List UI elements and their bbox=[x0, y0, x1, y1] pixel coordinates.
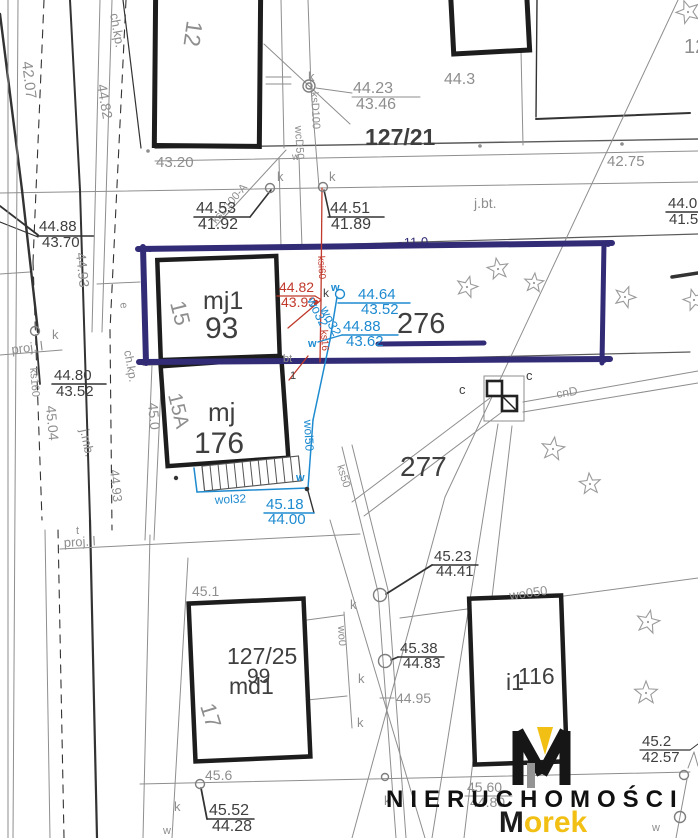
map-label: j.bt. bbox=[473, 195, 497, 211]
map-label: k bbox=[277, 169, 284, 184]
map-label: proj. l bbox=[63, 533, 96, 550]
map-label: e bbox=[117, 301, 130, 309]
map-label: w bbox=[291, 152, 300, 163]
map-label: ksi60 bbox=[315, 256, 327, 280]
map-label: 45.1 bbox=[192, 583, 219, 599]
map-label: k bbox=[329, 169, 336, 184]
map-label: 42.57 bbox=[642, 749, 680, 766]
conifer-icon bbox=[635, 681, 658, 703]
plot-highlight-line bbox=[602, 243, 604, 363]
manhole-icon bbox=[196, 780, 205, 789]
conifer-center bbox=[693, 299, 695, 301]
map-label: ks16 bbox=[318, 330, 330, 352]
map-label: k bbox=[323, 286, 330, 300]
parcel-line bbox=[316, 88, 352, 93]
map-label: 44.88 bbox=[39, 218, 77, 235]
parcel-line bbox=[0, 272, 30, 274]
map-label: 44.53 bbox=[196, 200, 236, 217]
map-label: 44.93 bbox=[73, 252, 93, 289]
map-label: c bbox=[459, 382, 466, 397]
map-label: 43.70 bbox=[42, 234, 80, 251]
parcel-line bbox=[172, 558, 188, 838]
map-label: 176 bbox=[194, 427, 244, 460]
map-label: 127/21 bbox=[365, 124, 436, 150]
map-label: k bbox=[350, 597, 357, 612]
map-label: wo0 bbox=[335, 625, 348, 647]
map-label: 44.41 bbox=[436, 563, 474, 580]
map-label: mj bbox=[208, 397, 235, 427]
map-label: md1 bbox=[229, 673, 274, 699]
parcel-line bbox=[201, 788, 207, 819]
parcel-line bbox=[60, 534, 360, 549]
map-label: 44.95 bbox=[396, 690, 431, 706]
parcel-line bbox=[388, 590, 406, 838]
parcel-line bbox=[281, 0, 284, 148]
map-label: 44.51 bbox=[330, 200, 370, 217]
survey-point bbox=[305, 487, 310, 492]
map-label: w bbox=[162, 825, 171, 837]
map-label: k bbox=[52, 327, 59, 342]
map-label: 12 bbox=[178, 19, 207, 48]
map-label: w bbox=[330, 282, 340, 294]
parcel-line bbox=[70, 0, 80, 190]
map-label: 44.23 bbox=[353, 80, 393, 97]
map-label: 44.82 bbox=[279, 279, 314, 295]
plot-highlight-line bbox=[138, 243, 612, 249]
parcel-line bbox=[307, 696, 347, 700]
conifer-center bbox=[647, 621, 649, 623]
map-label: ksD100 bbox=[308, 92, 322, 130]
map-label: 45.52 bbox=[209, 802, 249, 819]
map-label: 41.92 bbox=[198, 216, 238, 233]
map-label: 41.89 bbox=[331, 216, 371, 233]
map-label: k bbox=[308, 69, 315, 84]
map-label: k bbox=[357, 715, 364, 730]
parcel-line bbox=[45, 530, 50, 838]
parcel-line bbox=[250, 190, 271, 217]
survey-point bbox=[398, 242, 402, 246]
map-label: 42.75 bbox=[607, 153, 645, 170]
map-label: ks50 bbox=[334, 463, 352, 489]
survey-map: 1242.0744.82ch.kp.43.2042.75k44.2343.464… bbox=[0, 0, 698, 838]
parcel-line bbox=[145, 365, 152, 540]
map-label: mj1 bbox=[203, 287, 243, 315]
map-label: 44.0 bbox=[668, 195, 697, 212]
sewer-red-line bbox=[321, 188, 322, 300]
parcel-line bbox=[536, 0, 537, 117]
survey-point bbox=[174, 476, 178, 480]
conifer-center bbox=[497, 268, 499, 270]
parcel-line bbox=[688, 752, 694, 768]
map-label: k bbox=[358, 671, 365, 686]
map-label: 44.28 bbox=[212, 818, 252, 835]
map-label: wol32 bbox=[213, 491, 246, 507]
map-label: w bbox=[307, 338, 317, 350]
map-label: 45.04 bbox=[43, 405, 62, 442]
map-label: 44.80 bbox=[54, 367, 92, 384]
manhole-icon bbox=[319, 183, 328, 192]
parcel-line bbox=[352, 445, 388, 590]
map-label: 11.0 bbox=[404, 234, 429, 250]
parcel-line bbox=[0, 14, 22, 190]
conifer-icon bbox=[683, 289, 698, 310]
map-label: cnD bbox=[555, 384, 579, 401]
parcel-line bbox=[0, 182, 698, 193]
map-label: 43.52 bbox=[56, 383, 94, 400]
parcel-line bbox=[676, 779, 687, 838]
survey-point bbox=[605, 241, 611, 247]
plot-highlight-line bbox=[139, 359, 610, 362]
map-label: proj. l bbox=[11, 338, 44, 357]
survey-point bbox=[147, 246, 153, 252]
water-blue-line bbox=[194, 468, 197, 492]
map-label: w bbox=[651, 822, 660, 834]
map-canvas: 1242.0744.82ch.kp.43.2042.75k44.2343.464… bbox=[0, 0, 698, 838]
manhole-icon bbox=[374, 589, 387, 602]
parcel-line bbox=[445, 0, 678, 497]
parcel-line bbox=[536, 113, 690, 119]
map-label: c bbox=[526, 368, 533, 383]
map-label: 44.00 bbox=[268, 511, 306, 528]
map-label: 276 bbox=[397, 308, 445, 340]
c-symbol-square bbox=[487, 381, 502, 396]
map-label: bt bbox=[283, 353, 292, 365]
parcel-line bbox=[90, 520, 97, 838]
map-label: j.mb. bbox=[77, 427, 98, 459]
parcel-line bbox=[330, 520, 425, 838]
map-label: 43.62 bbox=[346, 333, 384, 350]
parcel-line bbox=[352, 398, 490, 502]
manhole-icon bbox=[379, 655, 392, 668]
conifer-center bbox=[552, 448, 554, 450]
parcel-line bbox=[143, 535, 150, 838]
parcel-line bbox=[672, 273, 698, 277]
map-label: 44.3 bbox=[444, 71, 475, 88]
plot-highlight-line bbox=[378, 343, 484, 344]
parcel-line bbox=[102, 0, 112, 332]
parcel-line bbox=[521, 50, 523, 145]
building-top-right bbox=[450, 0, 529, 54]
map-label: 45.0 bbox=[145, 402, 163, 431]
map-label: wol50 bbox=[301, 418, 317, 451]
map-label: 45.60 bbox=[467, 779, 502, 795]
survey-point bbox=[146, 149, 150, 153]
parcel-line bbox=[110, 0, 126, 330]
map-label: 43.46 bbox=[356, 96, 396, 113]
map-label: 44.80 bbox=[470, 794, 505, 810]
parcel-line bbox=[307, 615, 344, 620]
conifer-center bbox=[624, 296, 626, 298]
parcel-line bbox=[92, 0, 100, 332]
map-label: 44.83 bbox=[403, 655, 441, 672]
map-label: 44.93 bbox=[107, 469, 125, 503]
parcel-line bbox=[299, 158, 302, 247]
parcel-line bbox=[80, 190, 90, 520]
survey-point bbox=[620, 142, 624, 146]
plot-highlight-line bbox=[143, 247, 146, 363]
map-label: ks160 bbox=[27, 367, 42, 397]
map-label: 93 bbox=[205, 312, 238, 345]
map-label: k bbox=[384, 793, 391, 808]
conifer-center bbox=[687, 11, 689, 13]
map-label: 41.50 bbox=[669, 211, 698, 228]
map-label: 1 bbox=[290, 370, 296, 382]
conifer-center bbox=[466, 286, 468, 288]
parcel-line bbox=[0, 206, 38, 235]
parcel-line bbox=[694, 752, 698, 766]
map-label: 116 bbox=[518, 663, 555, 689]
parcel-line bbox=[690, 744, 698, 750]
survey-point bbox=[478, 144, 482, 148]
map-label: 43.20 bbox=[156, 154, 194, 171]
manhole-icon bbox=[382, 774, 389, 781]
conifer-center bbox=[589, 483, 591, 485]
parcel-line bbox=[58, 530, 64, 838]
map-label: 277 bbox=[400, 451, 447, 482]
map-label: 45.2 bbox=[642, 733, 671, 750]
parcel-line bbox=[308, 491, 314, 513]
map-label: k bbox=[174, 799, 181, 814]
parcel-line bbox=[123, 0, 141, 148]
map-label: w bbox=[295, 472, 305, 484]
conifer-center bbox=[645, 692, 647, 694]
map-label: 43.52 bbox=[361, 301, 399, 318]
water-blue-line bbox=[313, 340, 330, 420]
map-label: 42.07 bbox=[18, 60, 39, 99]
parcel-line bbox=[0, 222, 38, 237]
survey-point bbox=[601, 357, 607, 363]
map-label: 12 bbox=[684, 36, 698, 58]
map-label: ch.kp. bbox=[121, 349, 140, 383]
conifer-center bbox=[533, 282, 535, 284]
map-label: 45.6 bbox=[205, 767, 232, 783]
parcel-line bbox=[386, 565, 432, 594]
